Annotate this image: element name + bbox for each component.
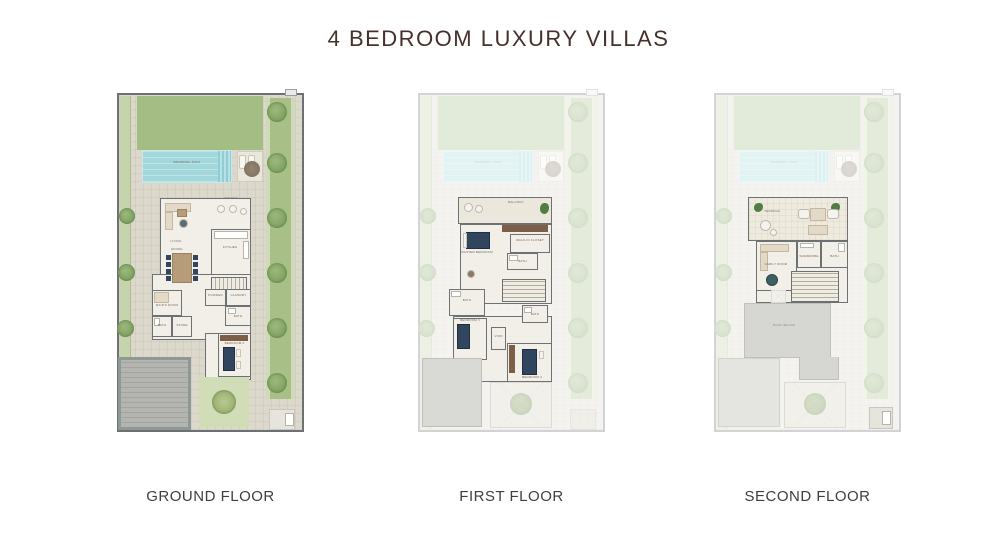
outdoor-chair [760, 220, 771, 231]
page-title: 4 BEDROOM LUXURY VILLAS [0, 26, 997, 52]
outdoor-armchair [827, 209, 839, 219]
roof-below-ext [799, 357, 839, 380]
bedside-table [236, 349, 241, 357]
floor-caption-first: FIRST FLOOR [418, 488, 605, 505]
lounge-chair [766, 274, 778, 286]
sofa [760, 244, 789, 252]
tree-icon [267, 318, 287, 338]
planting-strip-right-inner [867, 98, 888, 399]
tree-icon [864, 318, 884, 338]
outdoor-rug [810, 208, 826, 221]
roof-terrace [422, 358, 482, 427]
armchair [467, 270, 475, 278]
bath-fixture [451, 291, 461, 297]
entry-steps [285, 413, 294, 426]
pillow [463, 233, 467, 248]
room-label: BATH [522, 313, 548, 317]
tree-icon [864, 208, 884, 228]
gate-marker [285, 89, 297, 96]
tree-icon [714, 320, 731, 337]
floor-plan-ground: SWIMMING POOL LIVING SIT OUT KITCHEN [117, 93, 304, 432]
wardrobe [509, 345, 515, 373]
floor-plan-second: SWIMMING POOL TERRACE FAMILY ROOM WARDRO… [714, 93, 901, 432]
room-label: BEDROOM 4 [512, 376, 552, 380]
tree-icon [267, 102, 287, 122]
tree-icon [420, 208, 436, 224]
outdoor-sofa [808, 225, 828, 235]
sofa [165, 212, 173, 230]
floor-caption-second: SECOND FLOOR [714, 488, 901, 505]
room-label: SWIMMING POOL [443, 161, 533, 165]
bedside-table [539, 351, 544, 359]
dining-chair [166, 262, 171, 267]
room-label: SIT OUT [213, 197, 249, 201]
garden-lawn [137, 96, 263, 150]
garden-lawn [438, 96, 564, 150]
tree-icon [568, 373, 588, 393]
room-label: ROOF BELOW [769, 324, 799, 328]
gate-marker [882, 89, 894, 96]
pool-steps [519, 151, 532, 182]
bed [154, 292, 169, 303]
bedside-table [236, 361, 241, 369]
room-label: BATH [449, 299, 485, 303]
garden-lawn [734, 96, 860, 150]
room-label: MASTER BEDROOM [460, 251, 494, 255]
bed [522, 349, 537, 375]
outdoor-chair [240, 208, 247, 215]
planting-strip-right-inner [270, 98, 291, 399]
room-label: WALK-IN CLOSET [510, 239, 550, 243]
kitchen-counter [214, 231, 248, 239]
tree-icon [568, 318, 588, 338]
bed [457, 324, 470, 349]
room-label: VOID [491, 335, 506, 339]
room-label: LAUNDRY [226, 294, 251, 298]
armchair [179, 219, 188, 228]
planting-strip-right-inner [571, 98, 592, 399]
garage-roof [718, 358, 780, 427]
room-label: SWIMMING POOL [739, 161, 829, 165]
outdoor-armchair [798, 209, 810, 219]
pool-steps [218, 151, 231, 182]
outdoor-chair [217, 205, 225, 213]
gate-marker [586, 89, 598, 96]
room-label: LIVING [161, 240, 191, 244]
tree-icon [267, 153, 287, 173]
tree-icon [419, 264, 436, 281]
kitchen-counter [243, 241, 249, 259]
tree-icon [568, 263, 588, 283]
tree-icon [716, 208, 732, 224]
skylight [771, 290, 786, 303]
courtyard-tree-icon [212, 390, 236, 414]
roof-below [744, 303, 831, 358]
tree-icon [568, 153, 588, 173]
tree-icon [864, 102, 884, 122]
tree-icon [568, 102, 588, 122]
bed [466, 232, 490, 249]
outdoor-chair [229, 205, 237, 213]
walk-in-closet [510, 234, 550, 253]
dining-chair [193, 255, 198, 260]
tree-icon [568, 208, 588, 228]
umbrella-icon [841, 161, 857, 177]
stairs [502, 279, 546, 302]
tree-icon [418, 320, 435, 337]
tree-icon [118, 264, 135, 281]
entry-steps [882, 411, 891, 425]
outdoor-chair [475, 205, 483, 213]
floor-caption-ground: GROUND FLOOR [117, 488, 304, 505]
brochure-page: 4 BEDROOM LUXURY VILLAS SWIMMING POOL LI… [0, 0, 997, 537]
tree-icon [119, 208, 135, 224]
dining-chair [193, 269, 198, 274]
dining-chair [166, 255, 171, 260]
room-label: BALCONY [498, 201, 534, 205]
closet-fixture [800, 243, 814, 248]
room-label: FAMILY ROOM [758, 263, 794, 267]
tree-icon [117, 320, 134, 337]
tree-icon [267, 208, 287, 228]
floor-plan-first: SWIMMING POOL BALCONY MASTER BEDROOM WAL… [418, 93, 605, 432]
room-label: BATH [821, 255, 848, 259]
umbrella-icon [244, 161, 260, 177]
pool-steps [815, 151, 828, 182]
dining-chair [166, 276, 171, 281]
room-label: POWDER [205, 294, 226, 298]
driveway [118, 357, 191, 430]
tree-below-icon [510, 393, 532, 415]
room-label: DINING [163, 248, 191, 252]
bath-fixture [838, 243, 845, 252]
bed [223, 347, 235, 371]
room-label: BATH [225, 315, 251, 319]
room-label: BATH [152, 324, 172, 328]
tree-icon [864, 373, 884, 393]
entry-walk [570, 409, 596, 430]
coffee-table [177, 209, 187, 217]
room-label: MAID'S ROOM [152, 304, 182, 308]
room-label: BEDROOM 2 [218, 342, 251, 346]
room-label: SWIMMING POOL [142, 161, 232, 165]
stairs [791, 271, 839, 302]
room-label: BATH [507, 260, 538, 264]
dining-chair [193, 276, 198, 281]
side-table [770, 229, 777, 236]
wardrobe [502, 225, 548, 232]
tree-icon [267, 263, 287, 283]
room-label: BEDROOM 3 [453, 319, 487, 323]
outdoor-chair [464, 203, 473, 212]
tree-below-icon [804, 393, 826, 415]
tree-icon [864, 263, 884, 283]
tree-icon [267, 373, 287, 393]
tree-icon [864, 153, 884, 173]
dining-chair [193, 262, 198, 267]
room-label: STORE [172, 324, 192, 328]
dining-table [172, 253, 192, 283]
dining-chair [166, 269, 171, 274]
umbrella-icon [545, 161, 561, 177]
tree-icon [715, 264, 732, 281]
room-label: TERRACE [756, 210, 788, 214]
room-label: KITCHEN [215, 246, 245, 250]
room-label: WARDROBE [797, 255, 821, 259]
